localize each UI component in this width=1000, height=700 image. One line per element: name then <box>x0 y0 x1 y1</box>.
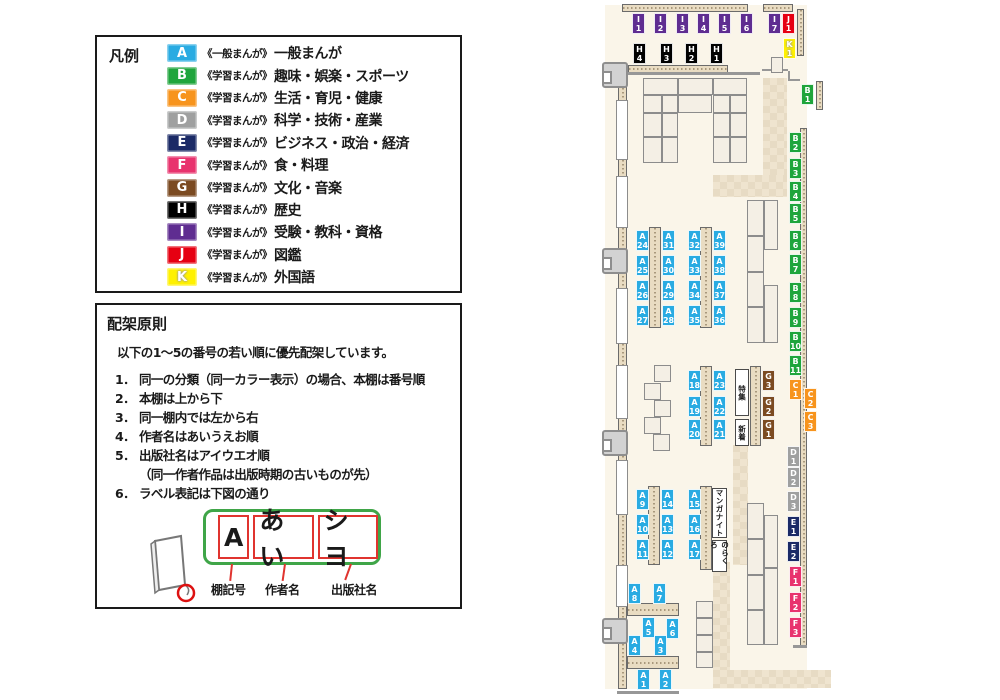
shelf-block <box>747 575 764 610</box>
shelf-block <box>747 236 764 272</box>
shelf-label-A33: A33 <box>688 255 701 276</box>
shelf-block <box>643 95 662 113</box>
shelf-label-G1: G1 <box>762 419 775 440</box>
shelf-block <box>747 307 764 343</box>
shelf-label-K1: K1 <box>783 38 796 59</box>
shelf-label-F3: F3 <box>789 617 802 638</box>
shelf-label-A31: A31 <box>662 230 675 251</box>
wall-segment <box>616 288 628 344</box>
shelf-block <box>747 200 764 236</box>
wall-segment <box>616 565 628 607</box>
shelf-label-A1: A1 <box>637 669 650 690</box>
shelf-block <box>653 434 670 451</box>
shelf-label-I6: I6 <box>740 13 753 34</box>
shelf-block <box>713 95 730 113</box>
wall-strip <box>622 4 748 12</box>
shelf-label-E1: E1 <box>787 516 800 537</box>
shelf-block <box>696 635 713 652</box>
shelf-label-A6: A6 <box>666 618 679 639</box>
shelf-label-A25: A25 <box>636 255 649 276</box>
wall-strip <box>816 81 823 110</box>
shelf-label-B7: B7 <box>789 254 802 275</box>
shelf-label-A7: A7 <box>653 583 666 604</box>
shelf-label-F1: F1 <box>789 566 802 587</box>
shelf-label-A34: A34 <box>688 280 701 301</box>
shelf-block <box>643 113 662 137</box>
shelf-label-I1: I1 <box>632 13 645 34</box>
shelf-label-A30: A30 <box>662 255 675 276</box>
wall-line <box>624 72 760 75</box>
area-label: 特集 <box>735 369 749 416</box>
shelf-label-B2: B2 <box>789 132 802 153</box>
shelf-block <box>654 400 671 417</box>
bookshelf-strip <box>648 486 660 565</box>
bookshelf-strip <box>750 366 761 446</box>
shelf-block <box>696 652 713 668</box>
shelf-label-D3: D3 <box>787 491 800 512</box>
wall-line <box>617 691 679 694</box>
shelf-block <box>730 95 747 113</box>
shelf-label-A39: A39 <box>713 230 726 251</box>
shelf-label-I3: I3 <box>676 13 689 34</box>
door <box>602 248 628 274</box>
wall-segment <box>616 460 628 515</box>
shelf-label-D1: D1 <box>787 446 800 467</box>
shelf-label-A20: A20 <box>688 419 701 440</box>
shelf-label-A17: A17 <box>688 539 701 560</box>
shelf-block <box>644 383 661 400</box>
floor-map: I1I2I3I4I5I6I7J1K1H4H3H2H1B1B2B3B4B5B6B7… <box>0 0 1000 700</box>
shelf-label-A15: A15 <box>688 489 701 510</box>
shelf-block <box>713 113 730 137</box>
shelf-label-H4: H4 <box>633 43 646 64</box>
shelf-label-B3: B3 <box>789 158 802 179</box>
shelf-block <box>644 417 661 434</box>
shelf-label-A19: A19 <box>688 396 701 417</box>
shelf-label-A27: A27 <box>636 305 649 326</box>
shelf-label-A8: A8 <box>628 583 641 604</box>
wall-segment <box>616 365 628 419</box>
bookshelf-strip <box>649 227 661 328</box>
shelf-block <box>713 137 730 163</box>
shelf-label-A28: A28 <box>662 305 675 326</box>
shelf-label-A29: A29 <box>662 280 675 301</box>
shelf-label-A37: A37 <box>713 280 726 301</box>
shelf-block <box>696 601 713 618</box>
shelf-label-C3: C3 <box>804 411 817 432</box>
door <box>602 62 628 88</box>
wall-segment <box>616 176 628 228</box>
shelf-block <box>764 285 778 343</box>
shelf-label-F2: F2 <box>789 592 802 613</box>
area-label: のらくろ <box>712 540 727 572</box>
shelf-label-A16: A16 <box>688 514 701 535</box>
shelf-label-I7: I7 <box>768 13 781 34</box>
shelf-block <box>662 113 678 137</box>
shelf-block <box>764 568 778 645</box>
wall-strip <box>797 9 804 56</box>
shelf-label-B9: B9 <box>789 307 802 328</box>
shelf-label-B8: B8 <box>789 282 802 303</box>
shelf-block <box>747 539 764 575</box>
bookshelf-strip <box>627 603 679 616</box>
shelf-label-A36: A36 <box>713 305 726 326</box>
wall-line <box>788 79 800 81</box>
shelf-label-H2: H2 <box>685 43 698 64</box>
shelf-label-B4: B4 <box>789 181 802 202</box>
shelf-label-I5: I5 <box>718 13 731 34</box>
shelf-block <box>654 365 671 382</box>
wall-line <box>793 645 807 648</box>
shelf-label-B10: B10 <box>789 331 802 352</box>
shelf-block <box>771 57 783 73</box>
wall-segment <box>616 100 628 160</box>
area-label: マンガナイト <box>712 488 727 538</box>
shelf-label-C1: C1 <box>789 379 802 400</box>
shelf-label-A21: A21 <box>713 419 726 440</box>
page: 凡例 A 《一般まんが》 一般まんが B 《学習まんが》 趣味・娯楽・スポーツ … <box>0 0 1000 700</box>
shelf-label-A14: A14 <box>661 489 674 510</box>
shelf-block <box>764 515 778 568</box>
walkway <box>713 562 730 670</box>
bookshelf-strip <box>700 366 712 446</box>
shelf-label-B11: B11 <box>789 355 802 376</box>
shelf-label-A9: A9 <box>636 489 649 510</box>
door <box>602 618 628 644</box>
shelf-block <box>747 610 764 645</box>
shelf-label-A26: A26 <box>636 280 649 301</box>
area-label: 新着 <box>735 419 749 446</box>
shelf-label-A38: A38 <box>713 255 726 276</box>
shelf-label-A2: A2 <box>659 669 672 690</box>
shelf-block <box>747 503 764 539</box>
shelf-label-A18: A18 <box>688 370 701 391</box>
walkway <box>763 78 787 176</box>
walkway <box>713 175 787 197</box>
shelf-block <box>643 78 678 95</box>
shelf-label-A3: A3 <box>654 635 667 656</box>
shelf-label-I2: I2 <box>654 13 667 34</box>
shelf-label-G2: G2 <box>762 396 775 417</box>
shelf-label-B1: B1 <box>801 84 814 105</box>
walkway <box>713 670 831 688</box>
shelf-label-B6: B6 <box>789 230 802 251</box>
shelf-label-J1: J1 <box>782 13 795 34</box>
shelf-label-A4: A4 <box>628 635 641 656</box>
shelf-block <box>713 78 747 95</box>
shelf-block <box>662 137 678 163</box>
shelf-block <box>678 95 712 113</box>
shelf-block <box>764 200 778 250</box>
shelf-label-I4: I4 <box>697 13 710 34</box>
shelf-block <box>643 137 662 163</box>
shelf-block <box>678 78 713 95</box>
shelf-block <box>662 95 678 113</box>
shelf-label-H3: H3 <box>660 43 673 64</box>
shelf-label-A22: A22 <box>713 396 726 417</box>
wall-strip <box>763 4 793 12</box>
bookshelf-strip <box>627 656 679 669</box>
shelf-label-A11: A11 <box>636 539 649 560</box>
shelf-label-E2: E2 <box>787 541 800 562</box>
shelf-label-A32: A32 <box>688 230 701 251</box>
shelf-label-A10: A10 <box>636 514 649 535</box>
shelf-label-B5: B5 <box>789 203 802 224</box>
shelf-block <box>696 618 713 635</box>
bookshelf-strip <box>700 227 712 328</box>
shelf-label-A23: A23 <box>713 370 726 391</box>
shelf-label-G3: G3 <box>762 370 775 391</box>
walkway <box>733 445 748 565</box>
shelf-label-D2: D2 <box>787 467 800 488</box>
shelf-label-A24: A24 <box>636 230 649 251</box>
shelf-block <box>730 137 747 163</box>
shelf-label-C2: C2 <box>804 388 817 409</box>
shelf-label-A13: A13 <box>661 514 674 535</box>
shelf-label-A35: A35 <box>688 305 701 326</box>
shelf-block <box>747 272 764 307</box>
shelf-label-H1: H1 <box>710 43 723 64</box>
door <box>602 430 628 456</box>
shelf-label-A12: A12 <box>661 539 674 560</box>
shelf-block <box>730 113 747 137</box>
